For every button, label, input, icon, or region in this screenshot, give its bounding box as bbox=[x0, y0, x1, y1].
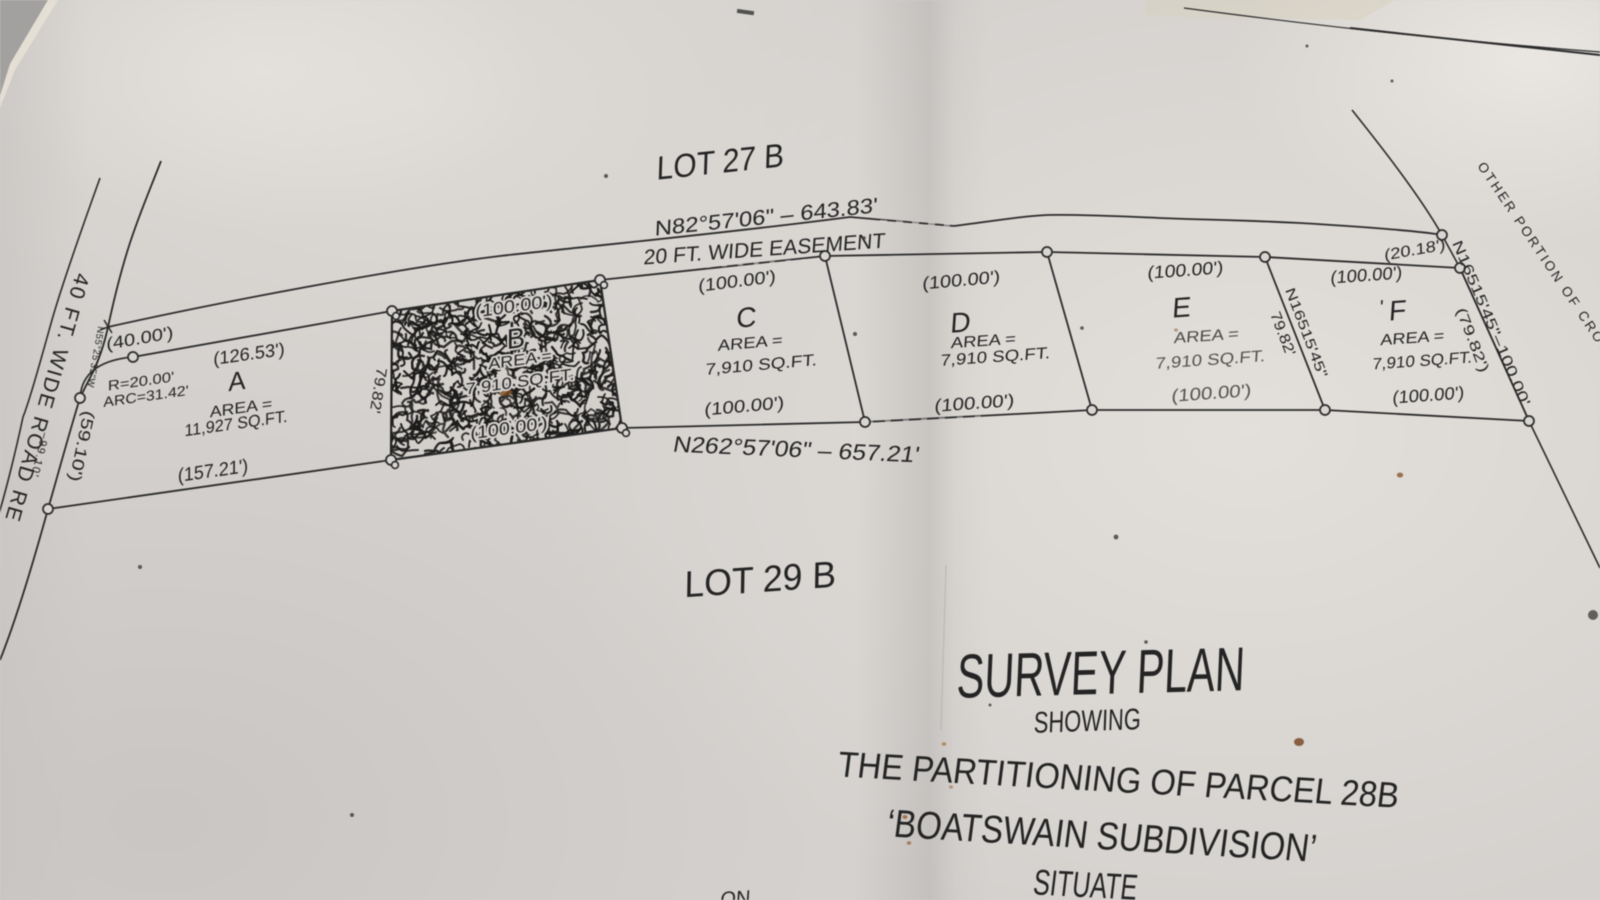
svg-text:SHOWING: SHOWING bbox=[1033, 703, 1141, 740]
svg-text:SURVEY PLAN: SURVEY PLAN bbox=[955, 635, 1246, 712]
svg-text:A: A bbox=[228, 365, 246, 398]
svg-text:E: E bbox=[1171, 291, 1192, 323]
svg-text:ON: ON bbox=[720, 887, 751, 900]
svg-text:SITUATE: SITUATE bbox=[1031, 861, 1140, 900]
svg-text:F: F bbox=[1388, 294, 1407, 326]
svg-text:B: B bbox=[507, 322, 525, 356]
svg-text:C: C bbox=[736, 301, 758, 334]
